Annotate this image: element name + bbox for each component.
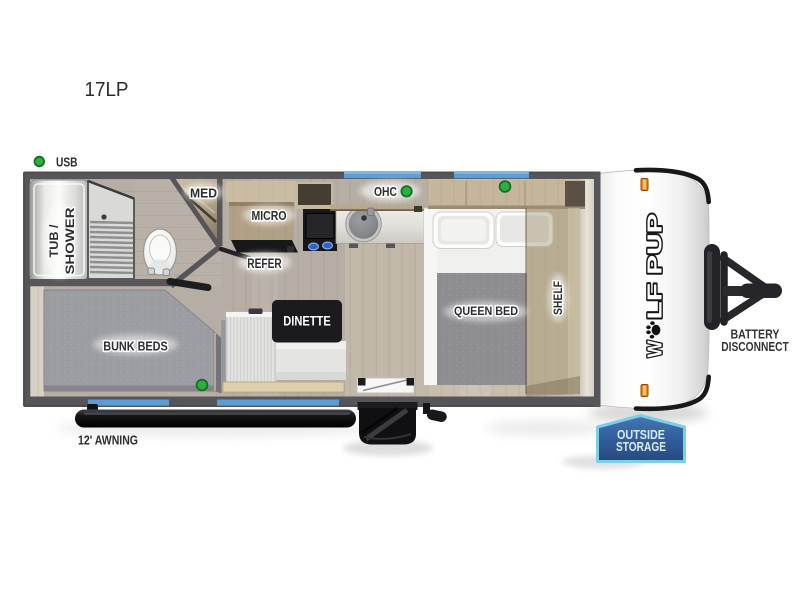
svg-text:DISCONNECT: DISCONNECT xyxy=(721,340,789,354)
svg-text:DINETTE: DINETTE xyxy=(283,313,331,328)
svg-text:REFER: REFER xyxy=(247,256,282,271)
svg-text:TUB /: TUB / xyxy=(47,224,61,258)
svg-text:MED: MED xyxy=(190,186,217,201)
svg-text:SHOWER: SHOWER xyxy=(63,207,77,274)
svg-text:MICRO: MICRO xyxy=(252,208,287,223)
svg-text:SHELF: SHELF xyxy=(551,281,565,315)
svg-text:W: W xyxy=(644,340,667,358)
svg-text:QUEEN BED: QUEEN BED xyxy=(454,304,518,318)
svg-text:USB: USB xyxy=(56,154,78,169)
svg-text:17LP: 17LP xyxy=(85,78,129,101)
svg-text:12' AWNING: 12' AWNING xyxy=(78,434,138,448)
svg-text:STORAGE: STORAGE xyxy=(616,440,666,454)
svg-text:OHC: OHC xyxy=(374,184,397,199)
svg-text:LF PUP: LF PUP xyxy=(644,214,667,320)
svg-text:BUNK BEDS: BUNK BEDS xyxy=(103,339,168,353)
